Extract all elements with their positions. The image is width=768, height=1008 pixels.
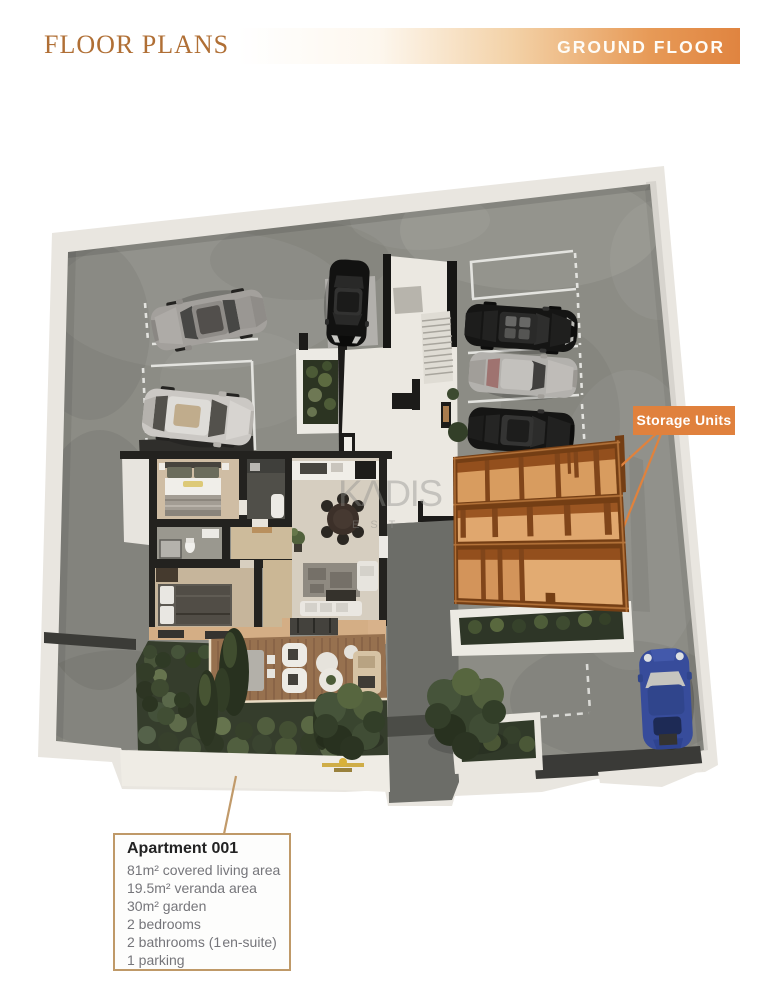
svg-text:Storage Units: Storage Units: [637, 412, 732, 428]
svg-text:E S T: E S T: [352, 519, 399, 531]
svg-text:KΛDIS: KΛDIS: [338, 473, 442, 514]
